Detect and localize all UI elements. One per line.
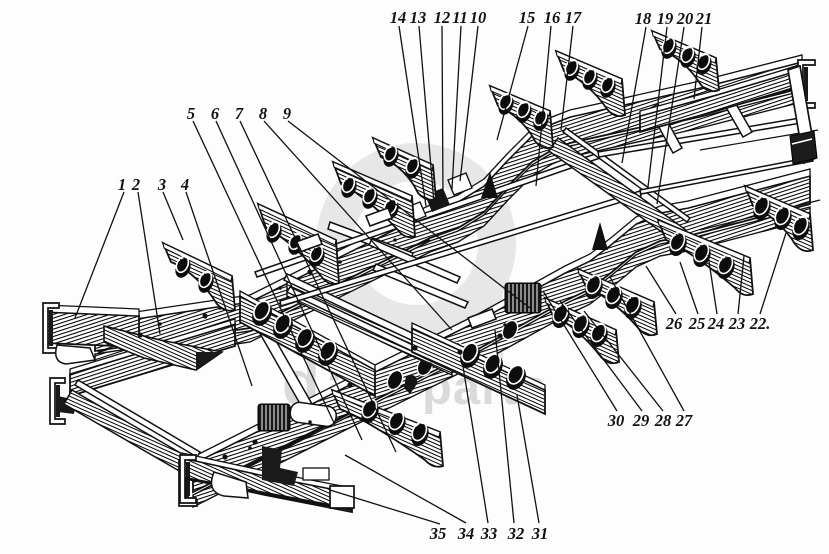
svg-text:29: 29	[632, 411, 650, 430]
svg-text:2: 2	[131, 175, 140, 194]
svg-text:26: 26	[665, 314, 683, 333]
svg-text:33: 33	[480, 524, 498, 543]
svg-text:15: 15	[519, 8, 536, 27]
svg-text:19: 19	[657, 9, 674, 28]
svg-text:3: 3	[157, 175, 166, 194]
svg-text:34: 34	[457, 524, 475, 543]
svg-text:12: 12	[434, 8, 451, 27]
svg-text:8: 8	[259, 104, 267, 123]
svg-text:5: 5	[187, 104, 195, 123]
svg-text:30: 30	[607, 411, 625, 430]
svg-text:35: 35	[429, 524, 447, 543]
svg-text:32: 32	[507, 524, 525, 543]
svg-text:18: 18	[635, 9, 652, 28]
svg-text:14: 14	[390, 8, 407, 27]
svg-text:13: 13	[410, 8, 427, 27]
svg-text:10: 10	[470, 8, 487, 27]
svg-text:11: 11	[452, 8, 468, 27]
svg-text:9: 9	[283, 104, 291, 123]
svg-text:16: 16	[544, 8, 561, 27]
svg-text:17: 17	[565, 8, 582, 27]
svg-text:27: 27	[675, 411, 693, 430]
svg-text:1: 1	[118, 175, 126, 194]
svg-text:6: 6	[211, 104, 220, 123]
svg-text:28: 28	[654, 411, 672, 430]
svg-text:4: 4	[180, 175, 189, 194]
svg-text:23: 23	[728, 314, 746, 333]
svg-text:20: 20	[676, 9, 694, 28]
svg-text:22.: 22.	[749, 314, 771, 333]
svg-text:7: 7	[235, 104, 244, 123]
svg-text:31: 31	[531, 524, 549, 543]
svg-text:24: 24	[707, 314, 725, 333]
svg-text:21: 21	[695, 9, 713, 28]
svg-text:25: 25	[688, 314, 706, 333]
